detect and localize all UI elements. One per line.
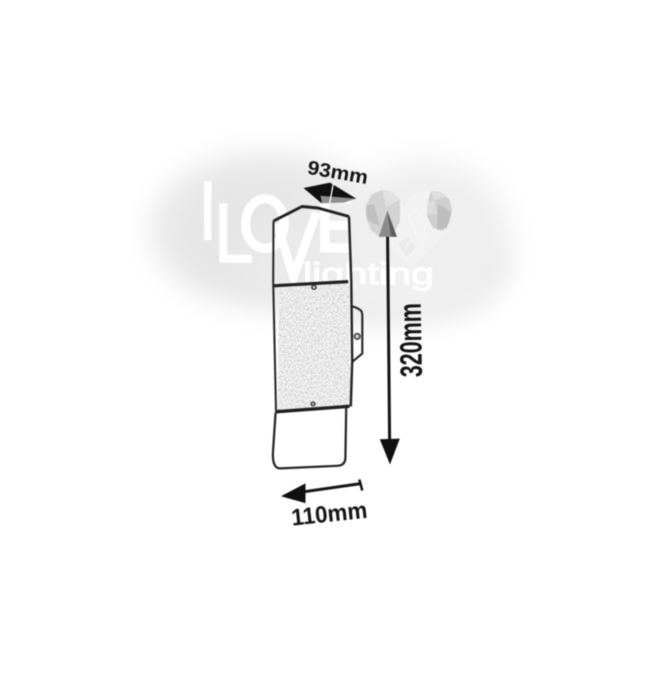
svg-text:320mm: 320mm xyxy=(393,303,429,378)
